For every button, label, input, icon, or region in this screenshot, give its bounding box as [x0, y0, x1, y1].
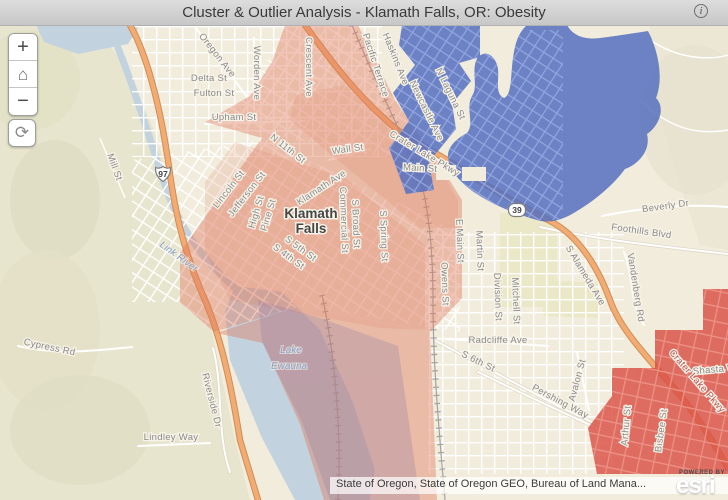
street-label: S Spring St — [377, 210, 390, 262]
title-bar: Cluster & Outlier Analysis - Klamath Fal… — [0, 0, 728, 26]
water-label: Ewauna — [271, 361, 308, 372]
svg-text:97: 97 — [158, 169, 168, 179]
esri-wordmark: esri — [676, 476, 725, 496]
route-shield-39: 39 — [509, 204, 526, 217]
street-label: Lindley Way — [144, 432, 199, 443]
attribution-text: State of Oregon, State of Oregon GEO, Bu… — [336, 478, 646, 490]
info-icon[interactable]: i — [694, 4, 708, 18]
map-gap — [462, 167, 486, 181]
street-label: Fulton St — [194, 88, 235, 99]
street-label: Worden Ave — [251, 46, 262, 100]
street-label: Martin St — [473, 230, 485, 271]
map-canvas[interactable]: Oregon AveWorden AveCrescent AveDelta St… — [0, 0, 728, 500]
city-label: Falls — [296, 221, 327, 236]
street-label: Commercial St — [337, 187, 350, 254]
refresh-icon: ⟳ — [15, 123, 29, 142]
zoom-controls: + ⌂ − — [8, 33, 38, 116]
street-label: Division St — [491, 273, 504, 322]
water-label: Lake — [280, 345, 302, 356]
svg-text:39: 39 — [512, 205, 522, 215]
street-label: Mitchell St — [509, 277, 522, 325]
attribution-bar: State of Oregon, State of Oregon GEO, Bu… — [330, 477, 728, 494]
street-label: Owens St — [438, 262, 451, 306]
refresh-button[interactable]: ⟳ — [8, 119, 36, 147]
street-label: Crescent Ave — [303, 37, 314, 97]
home-icon: ⌂ — [18, 65, 28, 84]
city-label: Klamath — [284, 206, 337, 221]
app-window: Oregon AveWorden AveCrescent AveDelta St… — [0, 0, 728, 500]
street-label: Delta St — [191, 73, 227, 84]
zoom-out-button[interactable]: − — [9, 88, 37, 115]
street-label: S Broad St — [349, 199, 362, 248]
page-title: Cluster & Outlier Analysis - Klamath Fal… — [182, 4, 545, 21]
home-button[interactable]: ⌂ — [9, 61, 37, 88]
zoom-in-button[interactable]: + — [9, 34, 37, 61]
street-label: Upham St — [212, 112, 257, 123]
esri-logo: POWERED BY esri — [676, 470, 725, 496]
street-label: E Main St — [453, 219, 466, 263]
street-label: Radcliffe Ave — [468, 335, 527, 346]
